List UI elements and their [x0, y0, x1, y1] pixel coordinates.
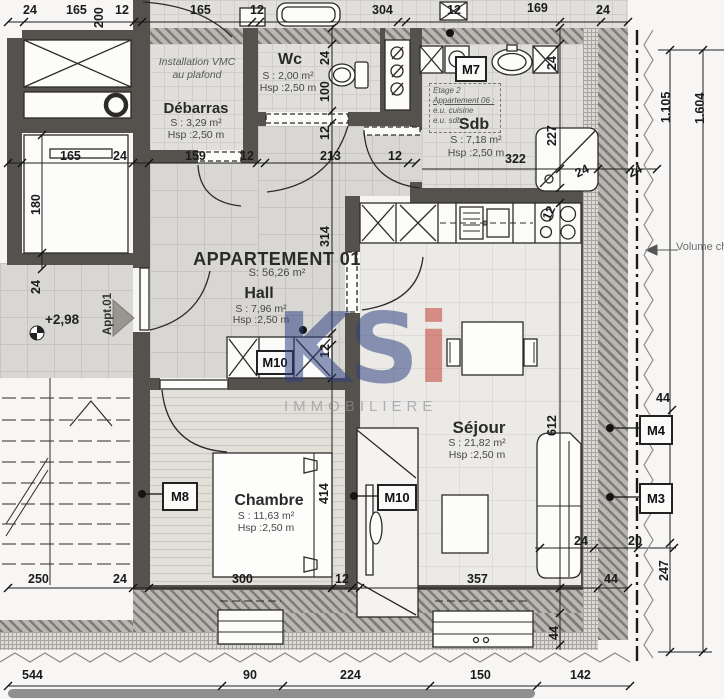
marker-m4: M4	[639, 415, 673, 445]
coffee-table	[442, 495, 488, 553]
dim-label: 165	[66, 3, 87, 17]
etage-note-line4: e.u. sdb	[433, 116, 497, 126]
dim-label: 24	[29, 270, 43, 294]
marker-m7: M7	[455, 56, 487, 82]
dim-label: 200	[92, 0, 106, 28]
level-label: +2,98	[45, 312, 79, 327]
floor-plan: 24 165 12 165 12 304 12 169 24 200 165 2…	[0, 0, 724, 699]
elevator-shaft	[24, 40, 131, 118]
dim-label: 24	[545, 46, 559, 70]
entrance-arrow-icon	[113, 300, 134, 336]
watermark-letter-i: i	[417, 292, 448, 405]
dim-label: 90	[243, 668, 257, 682]
room-name-sejour: Séjour	[409, 418, 549, 438]
staircase	[2, 378, 131, 585]
sejour-window	[433, 601, 533, 647]
room-area-sejour: S : 21,82 m²	[407, 437, 547, 449]
dim-label: 227	[545, 110, 559, 146]
dim-label: 250	[28, 572, 49, 586]
volume-arrow-icon	[646, 245, 678, 255]
room-area-chambre: S : 11,63 m²	[196, 510, 336, 522]
room-height-debarras: Hsp :2,50 m	[126, 129, 266, 141]
marker-m10-chambre: M10	[377, 484, 417, 511]
dim-label: 142	[570, 668, 591, 682]
room-area-debarras: S : 3,29 m²	[126, 117, 266, 129]
watermark-letter-k: K	[276, 292, 349, 405]
dim-label: 44	[656, 391, 670, 405]
dim-label: 12	[115, 3, 129, 17]
dining-table	[447, 322, 537, 375]
dim-label: 304	[372, 3, 393, 17]
dim-label: 247	[657, 545, 671, 581]
zigzag-right	[644, 30, 653, 658]
marker-m3: M3	[639, 483, 673, 514]
dim-label: 1.105	[659, 79, 673, 123]
apartment-area: S: 56,26 m²	[207, 267, 347, 279]
level-marker-icon	[30, 326, 44, 340]
dim-label: 544	[22, 668, 43, 682]
chambre-window	[218, 601, 283, 644]
dim-label: 150	[470, 668, 491, 682]
dim-label: 24	[596, 3, 610, 17]
watermark-logo: KSi	[276, 308, 448, 390]
dim-label: 44	[547, 616, 561, 640]
dim-label: 24	[574, 534, 588, 548]
dim-label: 165	[60, 149, 81, 163]
dim-label: 159	[185, 149, 206, 163]
dim-label: 224	[340, 668, 361, 682]
entrance-label: Appt.01	[102, 289, 114, 339]
dim-label: 12	[240, 149, 254, 163]
dim-label: 165	[190, 3, 211, 17]
dim-label: 24	[113, 572, 127, 586]
room-height-sejour: Hsp :2,50 m	[407, 449, 547, 461]
dim-label: 12	[250, 3, 264, 17]
watermark-letter-s: S	[349, 292, 417, 405]
room-height-wc: Hsp :2,50 m	[218, 82, 358, 94]
dim-label: 44	[604, 572, 618, 586]
dim-label: 169	[527, 1, 548, 15]
dim-label: 213	[320, 149, 341, 163]
dim-label: 12	[388, 149, 402, 163]
dim-label: 20	[628, 534, 642, 548]
room-name-wc: Wc	[220, 51, 360, 69]
dim-label: 12	[318, 116, 332, 140]
watermark-subtitle: IMMOBILIERE	[284, 398, 437, 415]
etage-note-line1: Etage 2	[433, 86, 497, 96]
dim-label: 357	[467, 572, 488, 586]
volume-label: Volume cha	[676, 241, 724, 253]
technical-shaft	[385, 40, 410, 110]
dim-label: 1.604	[693, 80, 707, 124]
dim-label: 314	[318, 211, 332, 247]
dim-label: 300	[232, 572, 253, 586]
dim-label: 322	[505, 152, 526, 166]
room-area-wc: S : 2,00 m²	[218, 70, 358, 82]
etage-note-line2: Appartement 06 :	[433, 96, 497, 106]
room-height-chambre: Hsp :2,50 m	[196, 522, 336, 534]
marker-m8: M8	[162, 482, 198, 511]
dim-label: 24	[113, 149, 127, 163]
etage-note-line3: e.u. cuisine	[433, 106, 497, 116]
etage-note-box: Etage 2 Appartement 06 : e.u. cuisine e.…	[429, 83, 501, 133]
dim-label: 12	[335, 572, 349, 586]
dim-label: 24	[23, 3, 37, 17]
room-area-sdb: S : 7,18 m²	[406, 134, 546, 146]
dim-label: 100	[318, 72, 332, 102]
dim-label: 24	[318, 41, 332, 65]
room-name-debarras: Débarras	[126, 100, 266, 117]
dim-label: 414	[317, 468, 331, 504]
zigzag-bottom	[0, 653, 630, 662]
dim-label: 180	[29, 179, 43, 215]
dim-label: 612	[545, 400, 559, 436]
dim-label: 12	[447, 3, 461, 17]
